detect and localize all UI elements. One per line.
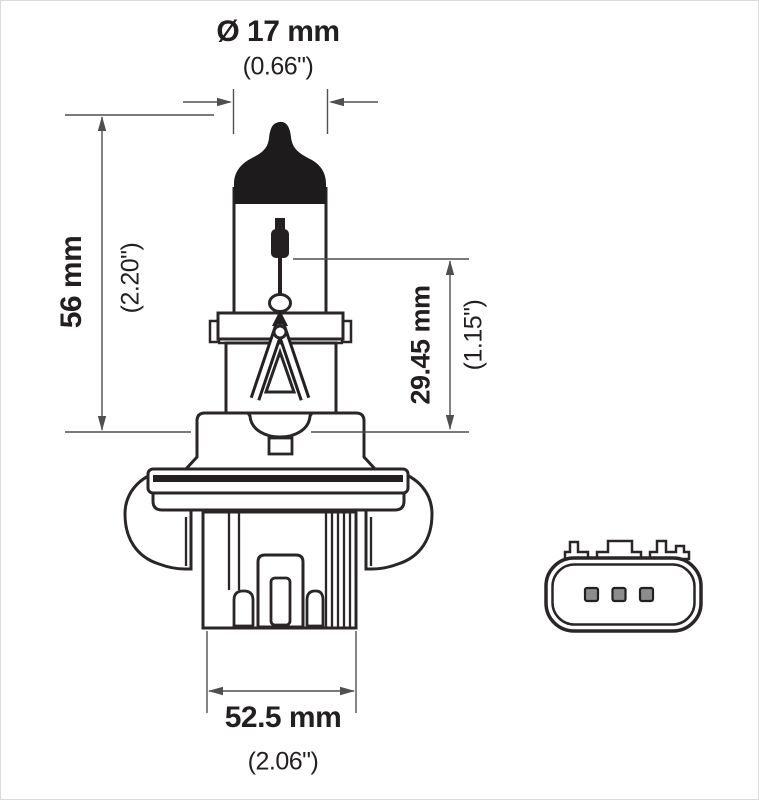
neck-outline bbox=[185, 413, 376, 470]
connector-pin-3 bbox=[640, 588, 653, 601]
label-width-mm: 52.5 mm bbox=[225, 703, 342, 733]
flange-lower-ring bbox=[153, 493, 404, 510]
connector-pin-2 bbox=[613, 588, 626, 601]
arrowhead bbox=[446, 260, 454, 275]
label-diameter-mm: Ø 17 mm bbox=[216, 17, 339, 47]
connector-rear-view bbox=[546, 541, 701, 631]
base-flange bbox=[148, 469, 408, 510]
filament-rod bbox=[271, 229, 289, 258]
support-pivot-hole bbox=[274, 326, 286, 338]
dome-tip bbox=[234, 122, 326, 204]
body-keyway-slot bbox=[271, 578, 290, 625]
connector-pin-1 bbox=[585, 588, 598, 601]
label-width-in: (2.06") bbox=[248, 750, 319, 775]
body-terminal-right bbox=[307, 591, 323, 626]
diagram-canvas bbox=[1, 1, 758, 799]
arrowhead bbox=[446, 415, 454, 430]
label-depth-mm: 29.45 mm bbox=[408, 285, 435, 404]
base-body bbox=[203, 512, 356, 628]
label-height-mm: 56 mm bbox=[57, 236, 87, 329]
label-depth-in: (1.15") bbox=[462, 300, 487, 371]
body-terminal-left bbox=[234, 591, 253, 626]
arrowhead bbox=[208, 687, 223, 695]
filament-bead bbox=[270, 295, 291, 312]
arrowhead bbox=[217, 98, 232, 106]
label-diameter-in: (0.66") bbox=[243, 55, 314, 80]
arrowhead bbox=[98, 116, 106, 131]
label-height-in: (2.20") bbox=[119, 243, 144, 314]
filament-assembly bbox=[270, 218, 291, 312]
arrowhead bbox=[98, 416, 106, 431]
arrowhead bbox=[329, 98, 344, 106]
arrowhead bbox=[340, 687, 355, 695]
base-neck bbox=[185, 413, 376, 470]
bulb-spec-diagram: Ø 17 mm (0.66") 56 mm (2.20") 29.45 mm (… bbox=[0, 0, 759, 800]
